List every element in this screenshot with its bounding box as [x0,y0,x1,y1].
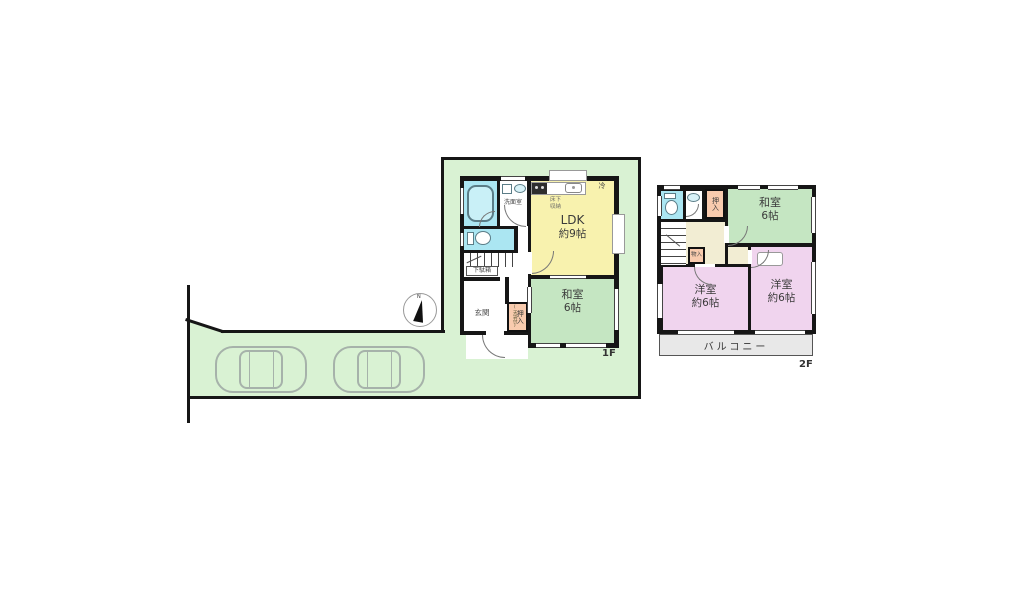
f2-yoshitsu-right-label: 洋室 約6帖 [751,278,812,305]
f2-hall [728,247,748,264]
window [738,185,760,190]
window [811,197,816,233]
f2-washitsu-label: 和室 6帖 [728,196,812,223]
f1-closet: (天袋付) 押入 [507,302,528,332]
sink-icon [565,183,582,193]
f2-yoshitsu-left-label: 洋室 約6帖 [663,283,748,310]
window [536,343,560,348]
f1-shoe-cabinet-label: 下駄箱 [473,267,491,274]
toilet-icon [475,231,491,245]
f1-closet-label: 押入 [516,310,523,324]
window [664,185,680,190]
f1-washitsu-label: 和室 6帖 [531,288,614,315]
f2-washitsu-name: 和室 [728,196,812,210]
f1-ldk-door-gap [527,252,532,274]
window [566,343,606,348]
lot-boundary [221,330,445,333]
f1-wall-stub [505,277,509,304]
f2-closet-label: 押入 [712,197,719,211]
compass-needle [413,299,427,322]
f2-yoshitsu-right-name: 洋室 [751,278,812,292]
window [614,289,619,330]
f2-storage-label: 物入 [691,252,702,259]
f1-wall-stub [460,277,500,281]
lot-boundary [187,396,641,399]
f1-ldk-label: LDK 約9帖 [531,213,614,241]
lot-boundary [187,285,190,423]
window [460,233,464,246]
window [768,185,798,190]
f1-ldk-name: LDK [531,213,614,228]
f2-closet: 押入 [705,189,725,219]
window [657,284,663,318]
toilet-icon [665,200,678,215]
f2-balcony: バルコニー [659,334,813,356]
fridge-label: 冷 [597,182,607,190]
f2-yoshitsu-left-name: 洋室 [663,283,748,297]
kitchen-bay-window [549,170,587,181]
lot-boundary [638,157,641,399]
f1-entrance-label: 玄関 [468,308,496,317]
f2-floor-label: 2F [799,359,813,370]
washbasin-icon [514,184,526,193]
window [657,196,662,216]
f1-floor-label: 1F [602,348,616,359]
f1-ldk-size: 約9帖 [531,228,614,241]
lot-boundary [441,157,641,160]
car-icon [333,346,425,393]
f2-washitsu-size: 6帖 [728,210,812,223]
f1-washitsu-size: 6帖 [531,302,614,315]
washing-machine-icon [502,184,512,194]
f1-washitsu-name: 和室 [531,288,614,302]
f1-floor-storage-label: 床下収納 [548,197,563,210]
f1-corridor [518,226,528,253]
toilet-icon [467,232,474,245]
window [811,262,816,314]
floor-plan-canvas: N 洗面室 下駄箱 (天袋付) 押入 玄関 [0,0,1024,610]
f2-yoshitsu-left-size: 約6帖 [663,297,748,310]
f2-stairs [661,222,686,265]
f2-balcony-label: バルコニー [704,338,769,353]
f2-yoshitsu-right-size: 約6帖 [751,292,812,305]
toilet-icon [664,193,676,199]
washbasin-icon [687,193,700,202]
f1-shoe-cabinet: 下駄箱 [466,266,498,276]
lot-boundary [441,157,444,333]
window [501,176,525,181]
compass-icon: N [403,293,437,327]
f2-storage: 物入 [688,247,705,264]
f1-fusuma-gap [527,287,532,313]
car-icon [215,346,307,393]
f1-ldk-bay-window [612,214,625,254]
stove-icon [532,183,547,194]
window [460,188,464,214]
